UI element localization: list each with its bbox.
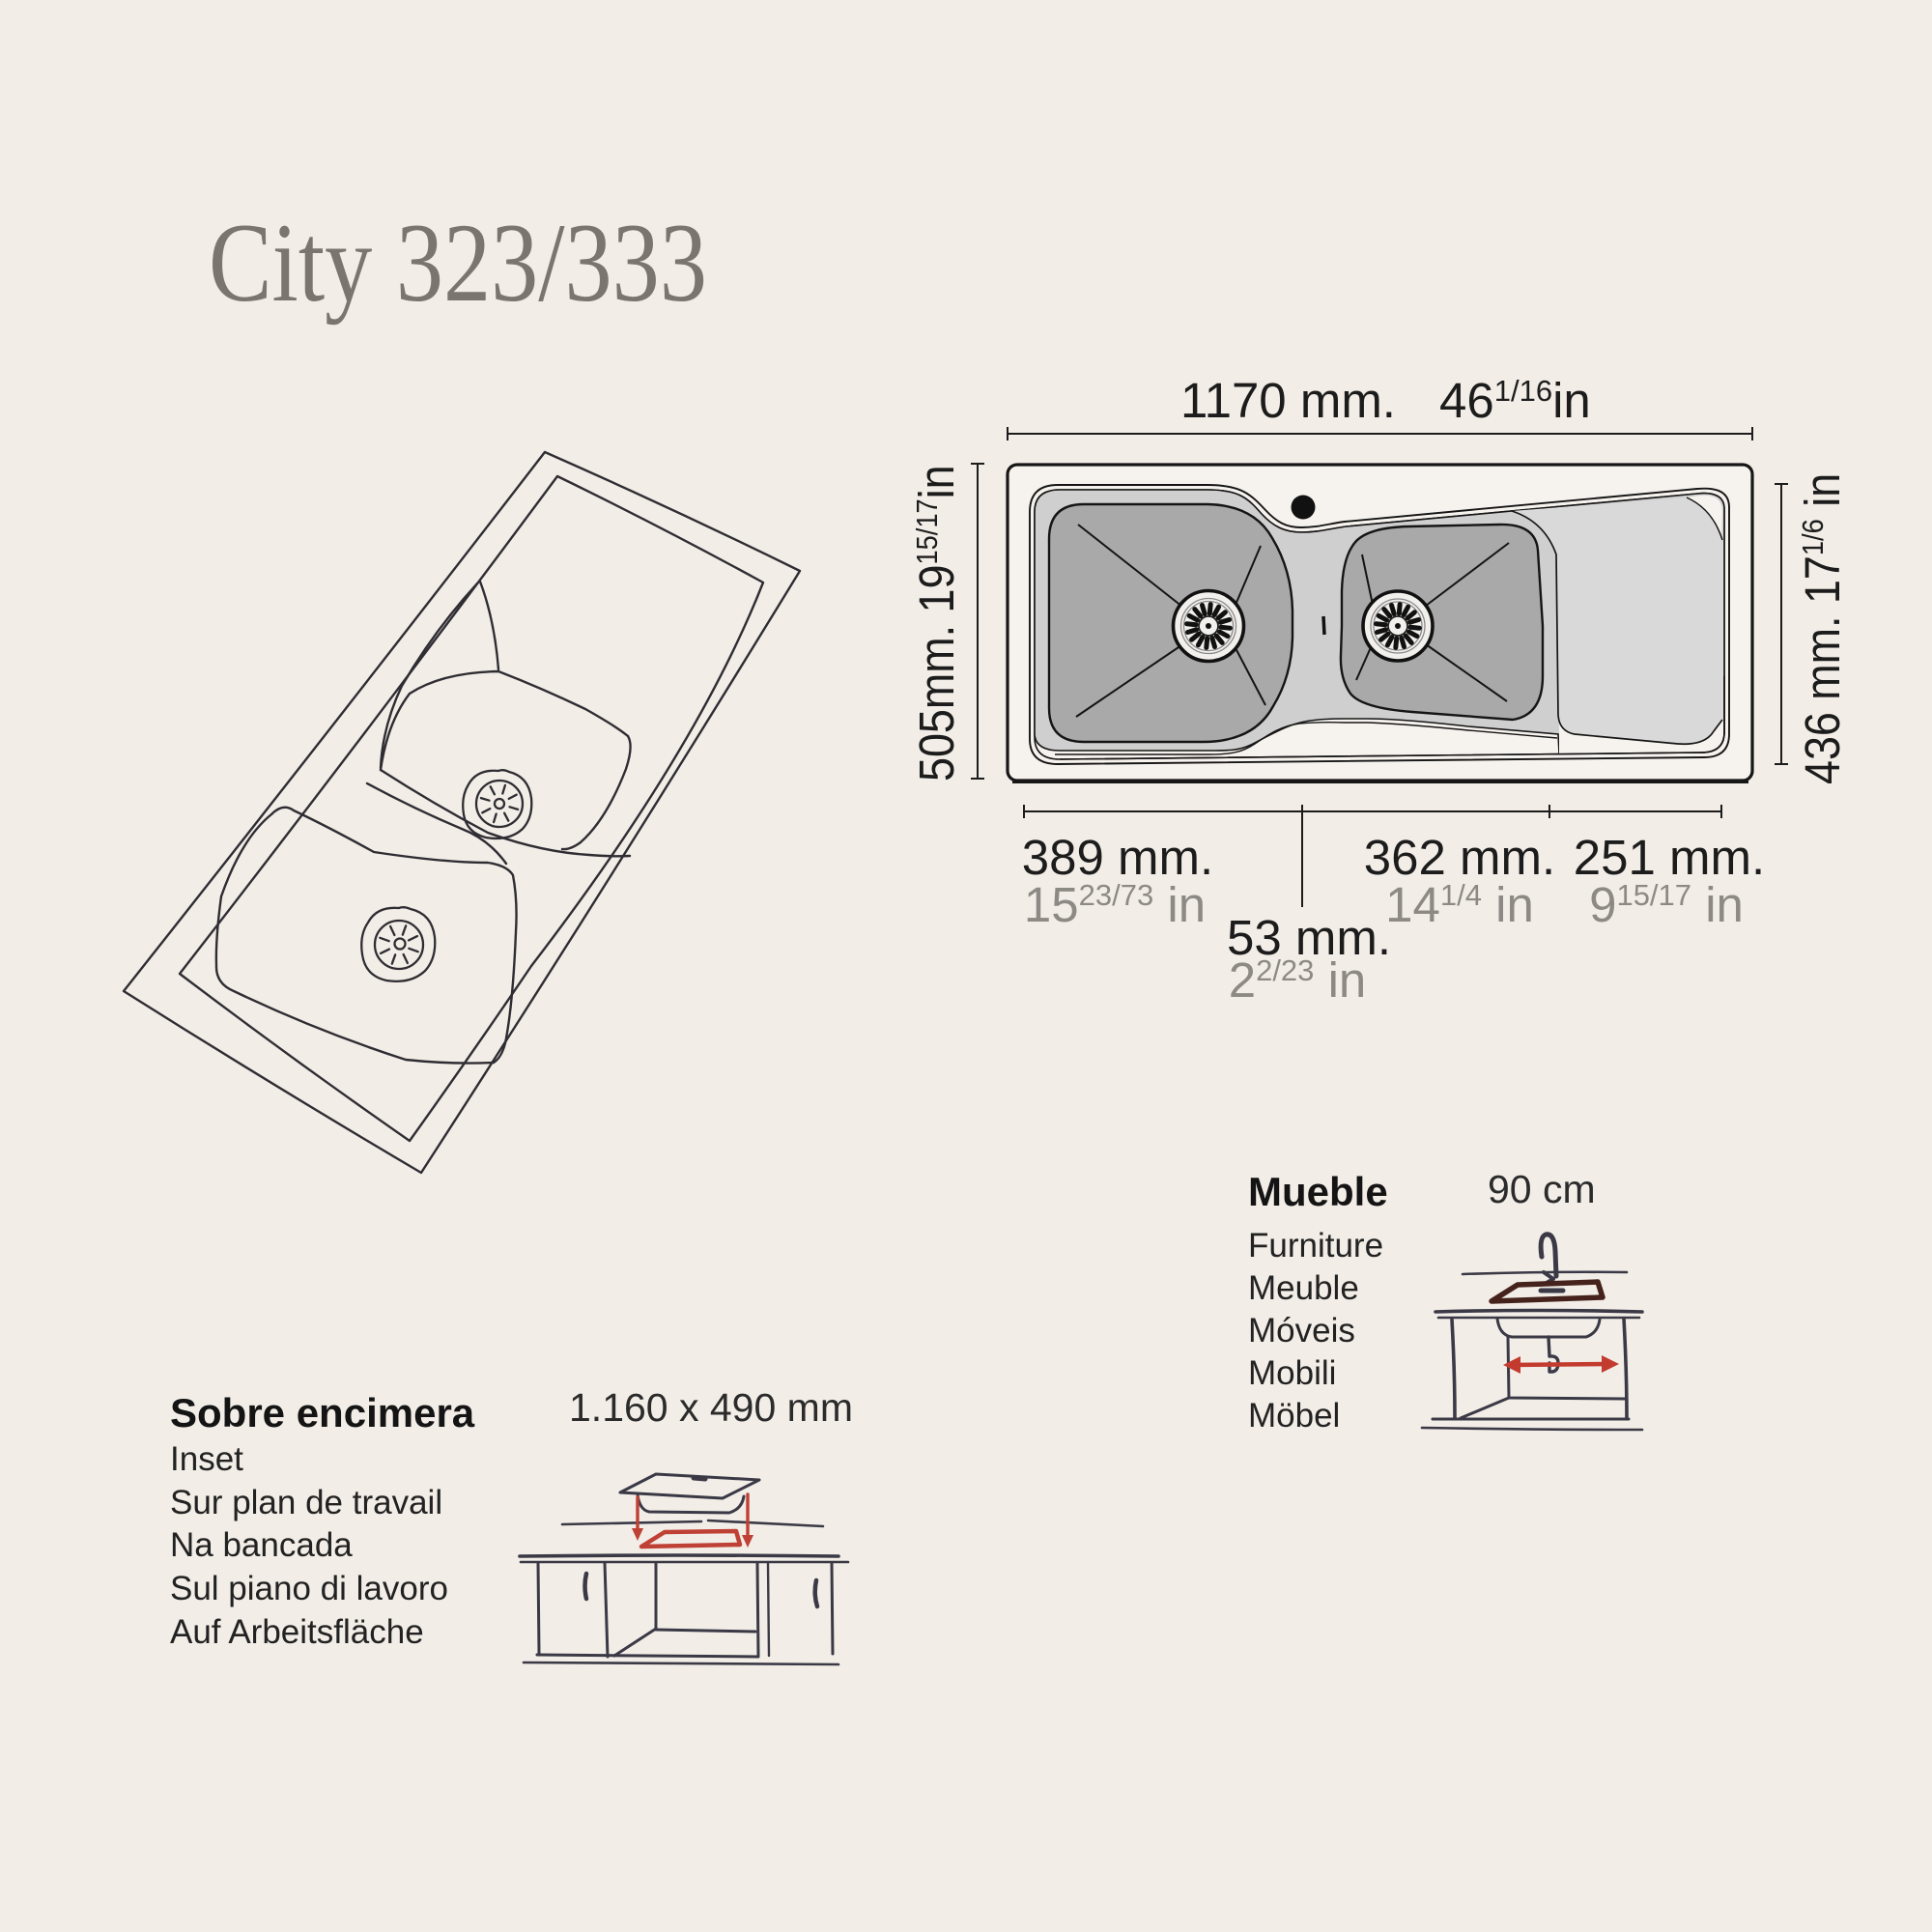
svg-text:Inset: Inset <box>170 1440 243 1478</box>
svg-text:Móveis: Móveis <box>1248 1312 1355 1350</box>
svg-text:1.160 x 490 mm: 1.160 x 490 mm <box>569 1385 853 1430</box>
svg-text:Sul piano di lavoro: Sul piano di lavoro <box>170 1570 448 1607</box>
svg-text:Na bancada: Na bancada <box>170 1526 353 1564</box>
svg-text:Mueble: Mueble <box>1248 1169 1388 1214</box>
svg-text:Sobre encimera: Sobre encimera <box>170 1390 475 1435</box>
svg-text:1170 mm.: 1170 mm. <box>1180 373 1396 428</box>
svg-text:Furniture: Furniture <box>1248 1227 1383 1264</box>
svg-text:City 323/333: City 323/333 <box>209 201 707 326</box>
svg-text:Sur plan de travail: Sur plan de travail <box>170 1484 442 1521</box>
svg-text:90 cm: 90 cm <box>1488 1167 1596 1211</box>
svg-text:Mobili: Mobili <box>1248 1354 1336 1392</box>
svg-text:Möbel: Möbel <box>1248 1397 1340 1435</box>
svg-text:Meuble: Meuble <box>1248 1269 1359 1307</box>
svg-text:Auf Arbeitsfläche: Auf Arbeitsfläche <box>170 1613 424 1651</box>
